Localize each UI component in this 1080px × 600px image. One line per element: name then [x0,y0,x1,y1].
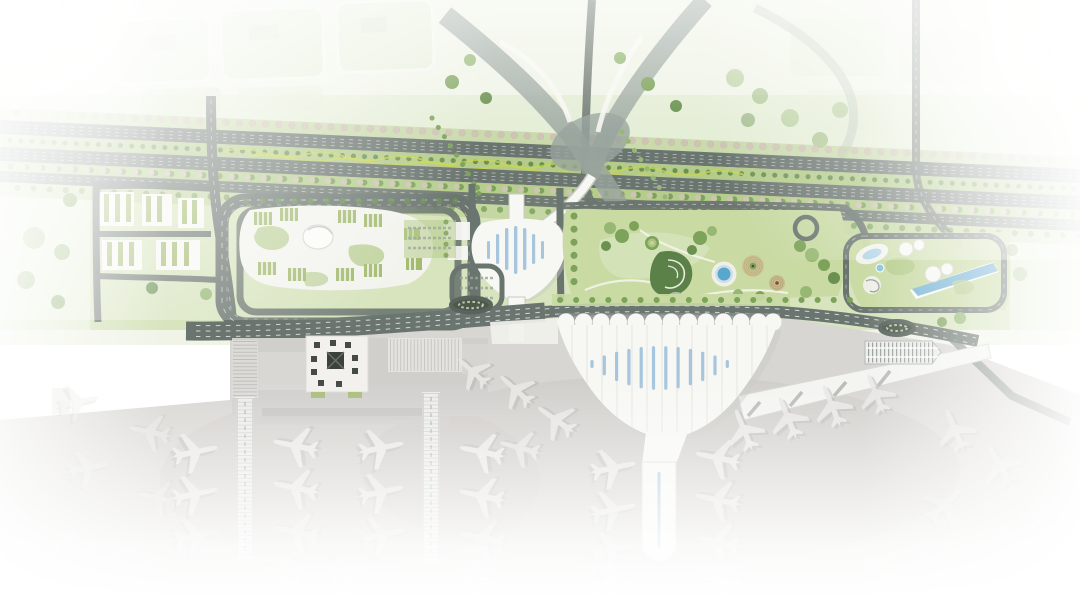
park-ring-garden [769,275,785,291]
airport-masterplan-canvas [0,0,1080,600]
link-building [490,318,558,344]
vignette [0,0,1080,600]
park-pond [712,262,737,287]
park-knoll [645,236,659,250]
masterplan-rendering [0,0,1080,600]
